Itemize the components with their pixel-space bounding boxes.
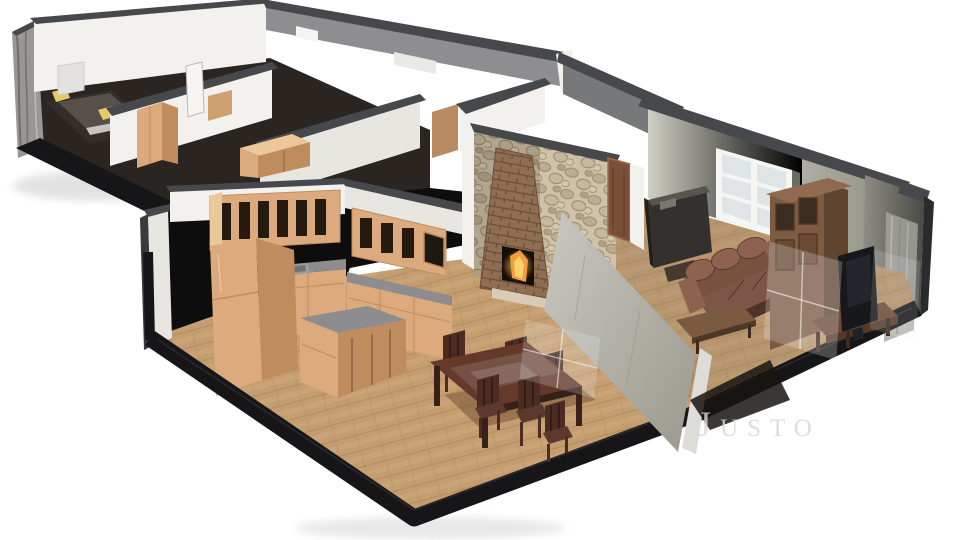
wall-picture bbox=[58, 62, 84, 95]
wardrobe bbox=[137, 102, 178, 168]
door-leaf bbox=[186, 62, 204, 117]
floorplan-render-stage: Justo bbox=[0, 0, 960, 540]
door-trim bbox=[630, 164, 644, 250]
refrigerator bbox=[210, 238, 298, 396]
upper-cabinets-left bbox=[210, 190, 340, 250]
floorplan-3d-scene: Justo bbox=[0, 0, 960, 540]
watermark: Justo bbox=[697, 404, 821, 444]
glass-cabinet-door bbox=[424, 232, 444, 268]
interior-door bbox=[608, 158, 630, 242]
headboard-cabinet bbox=[432, 104, 458, 158]
